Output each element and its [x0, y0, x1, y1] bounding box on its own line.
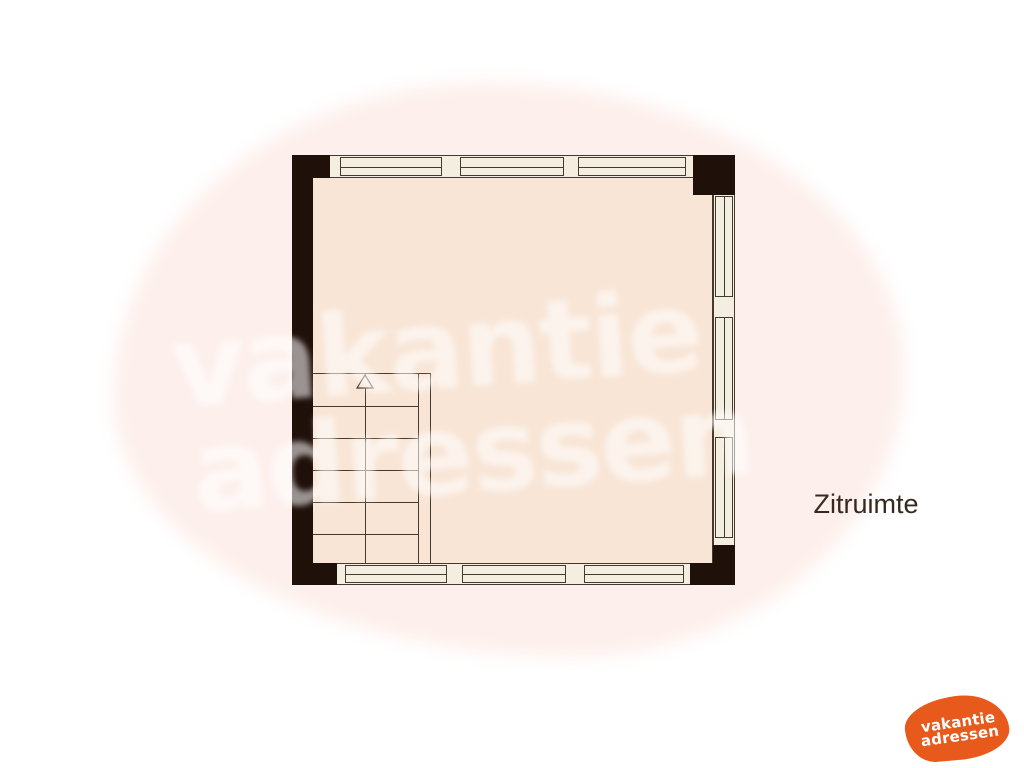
stair-center-line: [365, 374, 366, 564]
logo-text: vakantie adressen: [899, 686, 1020, 768]
window-top-3: [578, 157, 686, 176]
stairs-up-arrow-icon: [356, 374, 374, 389]
window-bottom-3: [584, 565, 684, 583]
room-label: Zitruimte: [746, 489, 986, 519]
window-bottom-2: [462, 565, 566, 583]
brand-logo: vakantie adressen: [903, 693, 1015, 765]
wall-corner-top-right: [693, 155, 735, 195]
floor-plan: Zitruimte: [292, 155, 735, 585]
window-top-1: [340, 157, 442, 176]
window-right-3: [715, 437, 733, 538]
wall-corner-bottom-right-side: [713, 545, 735, 585]
window-top-2: [460, 157, 564, 176]
staircase: [313, 373, 431, 563]
window-right-2: [715, 317, 733, 420]
window-bottom-1: [345, 565, 447, 583]
wall-left: [292, 155, 313, 585]
wall-corner-top-left: [292, 155, 330, 178]
window-right-1: [715, 196, 733, 297]
stair-stringer-line: [418, 374, 419, 564]
wall-corner-bottom-left: [292, 563, 337, 585]
floorplan-page: Zitruimte vakantie adressen vakantie adr…: [0, 0, 1024, 768]
